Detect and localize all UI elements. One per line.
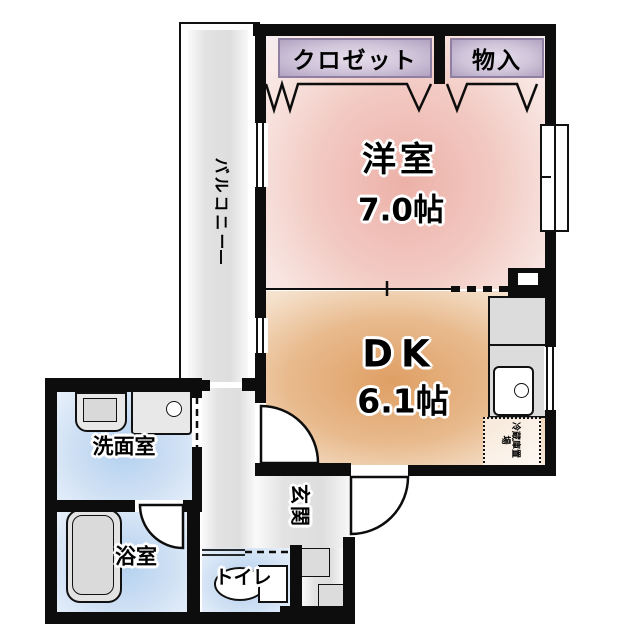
closet-door-zigzag-icon: [266, 84, 431, 110]
entrance-door-arc-icon: [351, 477, 408, 534]
window-icon: [253, 123, 268, 187]
closet-label-box: クロゼット: [278, 38, 432, 78]
wall: [253, 24, 556, 36]
door-and-partition-symbols: [0, 0, 640, 640]
wall: [242, 378, 266, 391]
balcony-label: バルコニー: [213, 158, 229, 253]
wall: [255, 187, 266, 318]
wall: [434, 24, 445, 84]
refrigerator-space-label: 冷蔵庫置場: [490, 420, 530, 460]
dk-door-arc-icon: [261, 406, 318, 463]
window-icon: [544, 347, 557, 410]
dk-label: DK: [362, 336, 437, 373]
storage-label: 物入: [472, 41, 522, 75]
toilet-label: トイレ: [214, 569, 271, 588]
wall: [183, 500, 202, 512]
western-room-label: 洋室: [362, 143, 438, 177]
floor-plan: クロゼット 物入 洋室 7.0帖 DK 6.1帖 洗面室 浴室 トイレ 玄関 バ…: [0, 0, 640, 640]
entrance-label: 玄関: [290, 484, 310, 528]
wall: [192, 378, 202, 398]
storage-label-box: 物入: [450, 38, 544, 78]
bathroom-door-arc-icon: [140, 505, 183, 548]
wall: [45, 500, 135, 512]
window-icon: [540, 124, 569, 232]
dk-size: 6.1帖: [357, 385, 448, 418]
wall: [290, 545, 302, 612]
wall: [280, 606, 355, 618]
wall: [255, 463, 351, 476]
western-room-size: 7.0帖: [358, 196, 444, 227]
washroom-label: 洗面室: [93, 437, 156, 458]
closet-label: クロゼット: [293, 41, 418, 75]
wall: [45, 378, 192, 392]
wall-notch: [518, 273, 538, 285]
wall: [545, 24, 556, 124]
wall: [408, 465, 556, 476]
bathroom-label: 浴室: [115, 547, 157, 568]
window-icon: [253, 318, 268, 353]
wall: [255, 24, 266, 123]
wall: [187, 512, 200, 612]
storage-door-zigzag-icon: [447, 84, 537, 110]
